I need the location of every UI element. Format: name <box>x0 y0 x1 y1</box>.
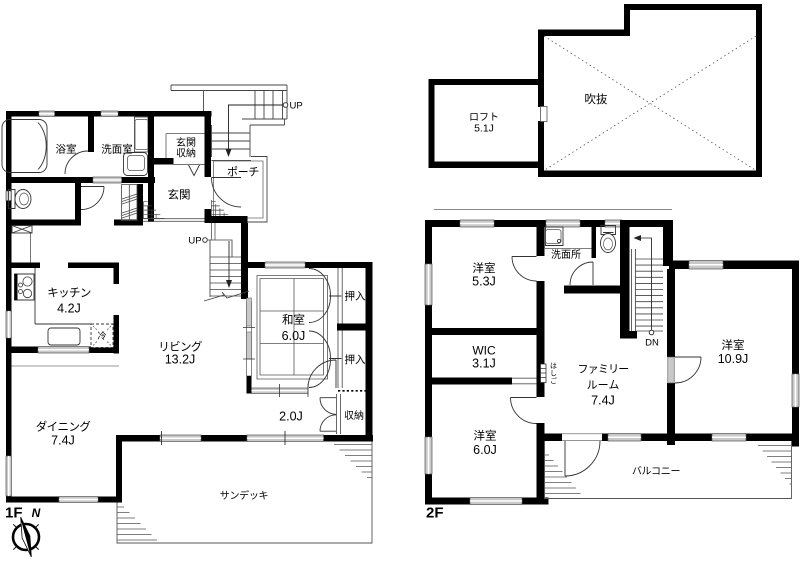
svg-text:6.0J: 6.0J <box>473 443 497 457</box>
svg-text:キッチン: キッチン <box>47 287 91 300</box>
svg-text:押入: 押入 <box>345 289 366 302</box>
svg-text:洋室: 洋室 <box>722 338 745 352</box>
svg-text:冷: 冷 <box>97 330 106 341</box>
svg-text:浴室: 浴室 <box>56 143 77 156</box>
svg-text:収納: 収納 <box>344 409 364 422</box>
svg-text:3.1J: 3.1J <box>472 356 496 370</box>
svg-text:吹抜: 吹抜 <box>585 92 608 106</box>
svg-text:リビング: リビング <box>158 340 203 354</box>
svg-text:し: し <box>550 370 557 378</box>
svg-text:玄関: 玄関 <box>176 136 196 149</box>
svg-text:10.9J: 10.9J <box>718 352 749 366</box>
svg-text:収納: 収納 <box>176 146 196 159</box>
svg-text:洋室: 洋室 <box>474 428 497 442</box>
svg-text:N: N <box>32 506 41 520</box>
svg-text:5.1J: 5.1J <box>474 123 494 135</box>
svg-text:ポーチ: ポーチ <box>227 166 259 179</box>
svg-text:DN: DN <box>645 338 659 349</box>
svg-text:洗面所: 洗面所 <box>551 249 581 261</box>
svg-text:7.4J: 7.4J <box>51 433 75 447</box>
svg-text:玄関: 玄関 <box>168 188 191 202</box>
svg-text:1F: 1F <box>5 505 23 522</box>
svg-text:押入: 押入 <box>345 353 366 366</box>
svg-text:洋室: 洋室 <box>473 261 496 275</box>
svg-text:7.4J: 7.4J <box>591 393 615 407</box>
svg-text:ご: ご <box>550 376 557 385</box>
svg-text:サンデッキ: サンデッキ <box>220 489 269 502</box>
svg-text:ルーム: ルーム <box>587 378 620 391</box>
svg-text:2.0J: 2.0J <box>279 410 303 424</box>
svg-text:和室: 和室 <box>282 312 305 326</box>
svg-text:6.0J: 6.0J <box>282 329 306 343</box>
svg-text:UP: UP <box>188 236 201 247</box>
svg-text:5.3J: 5.3J <box>472 274 496 288</box>
svg-text:UP: UP <box>290 101 303 112</box>
svg-text:WIC: WIC <box>472 343 496 357</box>
svg-text:ダイニング: ダイニング <box>36 419 92 433</box>
svg-text:13.2J: 13.2J <box>165 353 196 367</box>
svg-text:洗面室: 洗面室 <box>101 142 133 155</box>
svg-text:ファミリー: ファミリー <box>578 364 629 376</box>
svg-text:4.2J: 4.2J <box>57 301 81 315</box>
svg-text:2F: 2F <box>426 505 444 522</box>
svg-text:は: は <box>550 362 557 370</box>
svg-text:バルコニー: バルコニー <box>632 465 680 477</box>
